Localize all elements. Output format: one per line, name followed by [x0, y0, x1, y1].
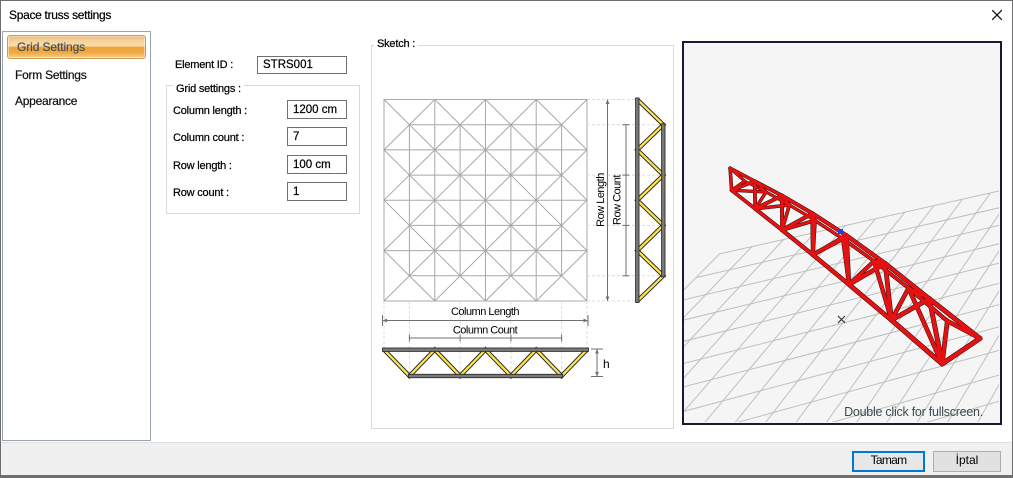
svg-text:Row Count: Row Count: [612, 175, 624, 225]
svg-text:Column Count: Column Count: [453, 325, 518, 337]
svg-text:h: h: [603, 357, 610, 371]
svg-text:Row Length: Row Length: [595, 173, 607, 227]
svg-text:Column Length: Column Length: [451, 306, 519, 318]
